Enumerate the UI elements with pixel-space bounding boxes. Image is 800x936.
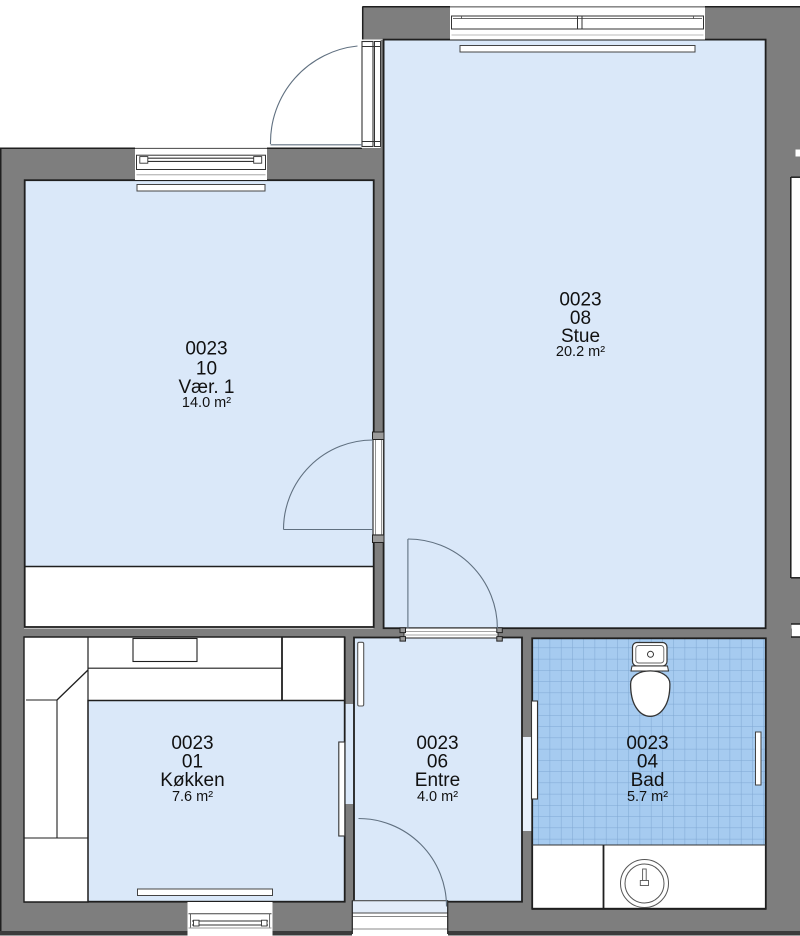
svg-text:Køkken: Køkken [160,770,224,791]
svg-text:0023: 0023 [185,339,227,360]
svg-text:20.2 m²: 20.2 m² [556,344,605,360]
svg-text:Entre: Entre [415,770,460,791]
svg-text:4.0 m²: 4.0 m² [417,789,458,805]
svg-text:5.7 m²: 5.7 m² [627,789,668,805]
svg-text:14.0 m²: 14.0 m² [182,395,231,411]
svg-text:7.6 m²: 7.6 m² [172,789,213,805]
svg-text:Bad: Bad [631,770,665,791]
